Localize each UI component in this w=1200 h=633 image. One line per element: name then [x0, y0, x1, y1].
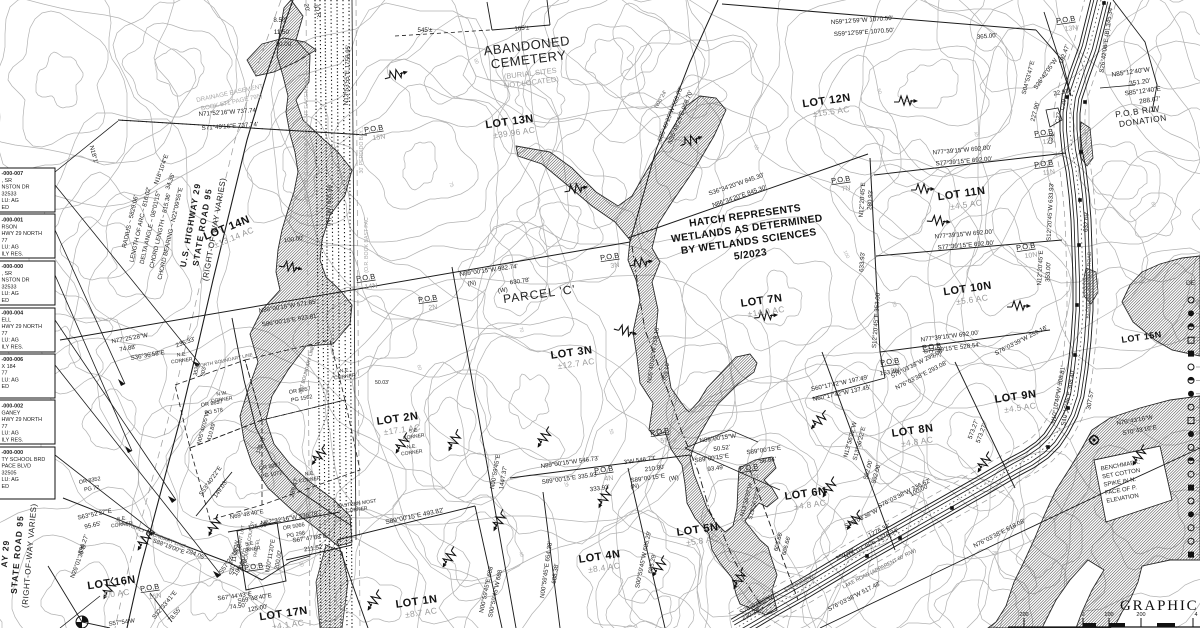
- svg-text:, SR: , SR: [2, 271, 13, 277]
- svg-text:LU: AG: LU: AG: [2, 338, 19, 344]
- svg-text:32533: 32533: [2, 191, 17, 197]
- svg-text:LU: AG: LU: AG: [2, 198, 19, 204]
- svg-text:50.03': 50.03': [375, 380, 389, 386]
- svg-text:PACE BLVD: PACE BLVD: [2, 464, 32, 470]
- svg-text:(N) (W) 605.69': (N) (W) 605.69': [325, 184, 333, 226]
- svg-text:77: 77: [2, 331, 8, 337]
- svg-text:(W): (W): [668, 474, 679, 482]
- svg-text:-000-001: -000-001: [2, 218, 24, 224]
- svg-text:3N: 3N: [610, 262, 620, 270]
- svg-text:77: 77: [2, 424, 8, 430]
- svg-text:TY SCHOOL BRD: TY SCHOOL BRD: [2, 457, 46, 463]
- svg-text:LU: AG: LU: AG: [2, 377, 19, 383]
- svg-text:ELL: ELL: [2, 317, 12, 323]
- svg-text:-000-004: -000-004: [2, 311, 24, 317]
- svg-text:0: 0: [1081, 612, 1084, 618]
- svg-text:LU: AG: LU: AG: [2, 431, 19, 437]
- svg-text:ILY RES.: ILY RES.: [2, 345, 24, 351]
- svg-text:77: 77: [2, 371, 8, 377]
- svg-text:GRAPHIC SC: GRAPHIC SC: [1120, 598, 1200, 614]
- svg-text:7N: 7N: [841, 185, 851, 193]
- svg-text:11.50': 11.50': [274, 29, 290, 36]
- svg-text:ED: ED: [2, 298, 10, 304]
- svg-text:ED: ED: [2, 205, 10, 211]
- svg-text:165'±: 165'±: [514, 24, 530, 32]
- svg-text:8.50': 8.50': [273, 17, 286, 24]
- svg-text:100' FLORIDA POWER AND LIGHT E: 100' FLORIDA POWER AND LIGHT EASEMENT: [304, 76, 310, 203]
- svg-text:ED: ED: [2, 384, 10, 390]
- svg-text:4: 4: [1194, 612, 1197, 618]
- svg-text:6N: 6N: [749, 473, 759, 481]
- svg-text:ILY RES.: ILY RES.: [2, 438, 24, 444]
- svg-text:280.93': 280.93': [866, 190, 874, 211]
- svg-text:ILY RES.: ILY RES.: [2, 252, 24, 258]
- svg-text:353.00': 353.00': [1044, 262, 1052, 282]
- svg-text:5N: 5N: [660, 437, 670, 445]
- svg-text:4N: 4N: [604, 475, 614, 483]
- svg-text:DE: DE: [1186, 280, 1196, 287]
- svg-text:32533: 32533: [2, 284, 17, 290]
- svg-text:20.00': 20.00': [276, 41, 293, 48]
- svg-text:32505: 32505: [2, 470, 17, 476]
- svg-text:-000-002: -000-002: [2, 404, 24, 410]
- svg-text:NSTON DR: NSTON DR: [2, 278, 30, 284]
- svg-text:-000-000: -000-000: [2, 450, 24, 456]
- svg-text:200: 200: [1019, 612, 1028, 618]
- svg-text:25: 25: [992, 551, 998, 557]
- svg-text:-000-000: -000-000: [2, 264, 24, 270]
- svg-text:HWY 29 NORTH: HWY 29 NORTH: [2, 324, 43, 330]
- svg-text:, SR: , SR: [2, 178, 13, 184]
- svg-text:(N): (N): [467, 279, 476, 287]
- svg-text:100: 100: [1104, 612, 1113, 618]
- svg-text:-000-007: -000-007: [2, 171, 24, 177]
- svg-text:20': 20': [302, 3, 310, 12]
- svg-text:HWY 29 NORTH: HWY 29 NORTH: [2, 417, 43, 423]
- svg-text:545'±: 545'±: [418, 27, 434, 34]
- svg-text:(N): (N): [630, 482, 639, 490]
- svg-text:632.69': 632.69': [1082, 212, 1090, 232]
- svg-text:ED: ED: [2, 484, 10, 490]
- svg-text:30' PERDIDO BAY...: 30' PERDIDO BAY...: [359, 127, 365, 174]
- svg-text:633.93': 633.93': [858, 252, 866, 273]
- svg-text:2N: 2N: [428, 304, 438, 312]
- svg-text:LU: AG: LU: AG: [2, 477, 19, 483]
- svg-text:77: 77: [2, 238, 8, 244]
- svg-text:RSON: RSON: [2, 224, 18, 230]
- svg-text:-000-006: -000-006: [2, 357, 24, 363]
- svg-text:(W): (W): [497, 286, 508, 294]
- svg-text:200: 200: [1136, 612, 1145, 618]
- svg-text:(O.R. BOOK BAST PAC: (O.R. BOOK BAST PAC: [364, 217, 370, 273]
- svg-text:LU: AG: LU: AG: [2, 245, 19, 251]
- svg-text:X 184: X 184: [2, 364, 16, 370]
- svg-text:GANEY: GANEY: [2, 410, 21, 416]
- svg-text:HWY 29 NORTH: HWY 29 NORTH: [2, 231, 43, 237]
- svg-text:LU: AG: LU: AG: [2, 291, 19, 297]
- svg-text:NSTON DR: NSTON DR: [2, 185, 30, 191]
